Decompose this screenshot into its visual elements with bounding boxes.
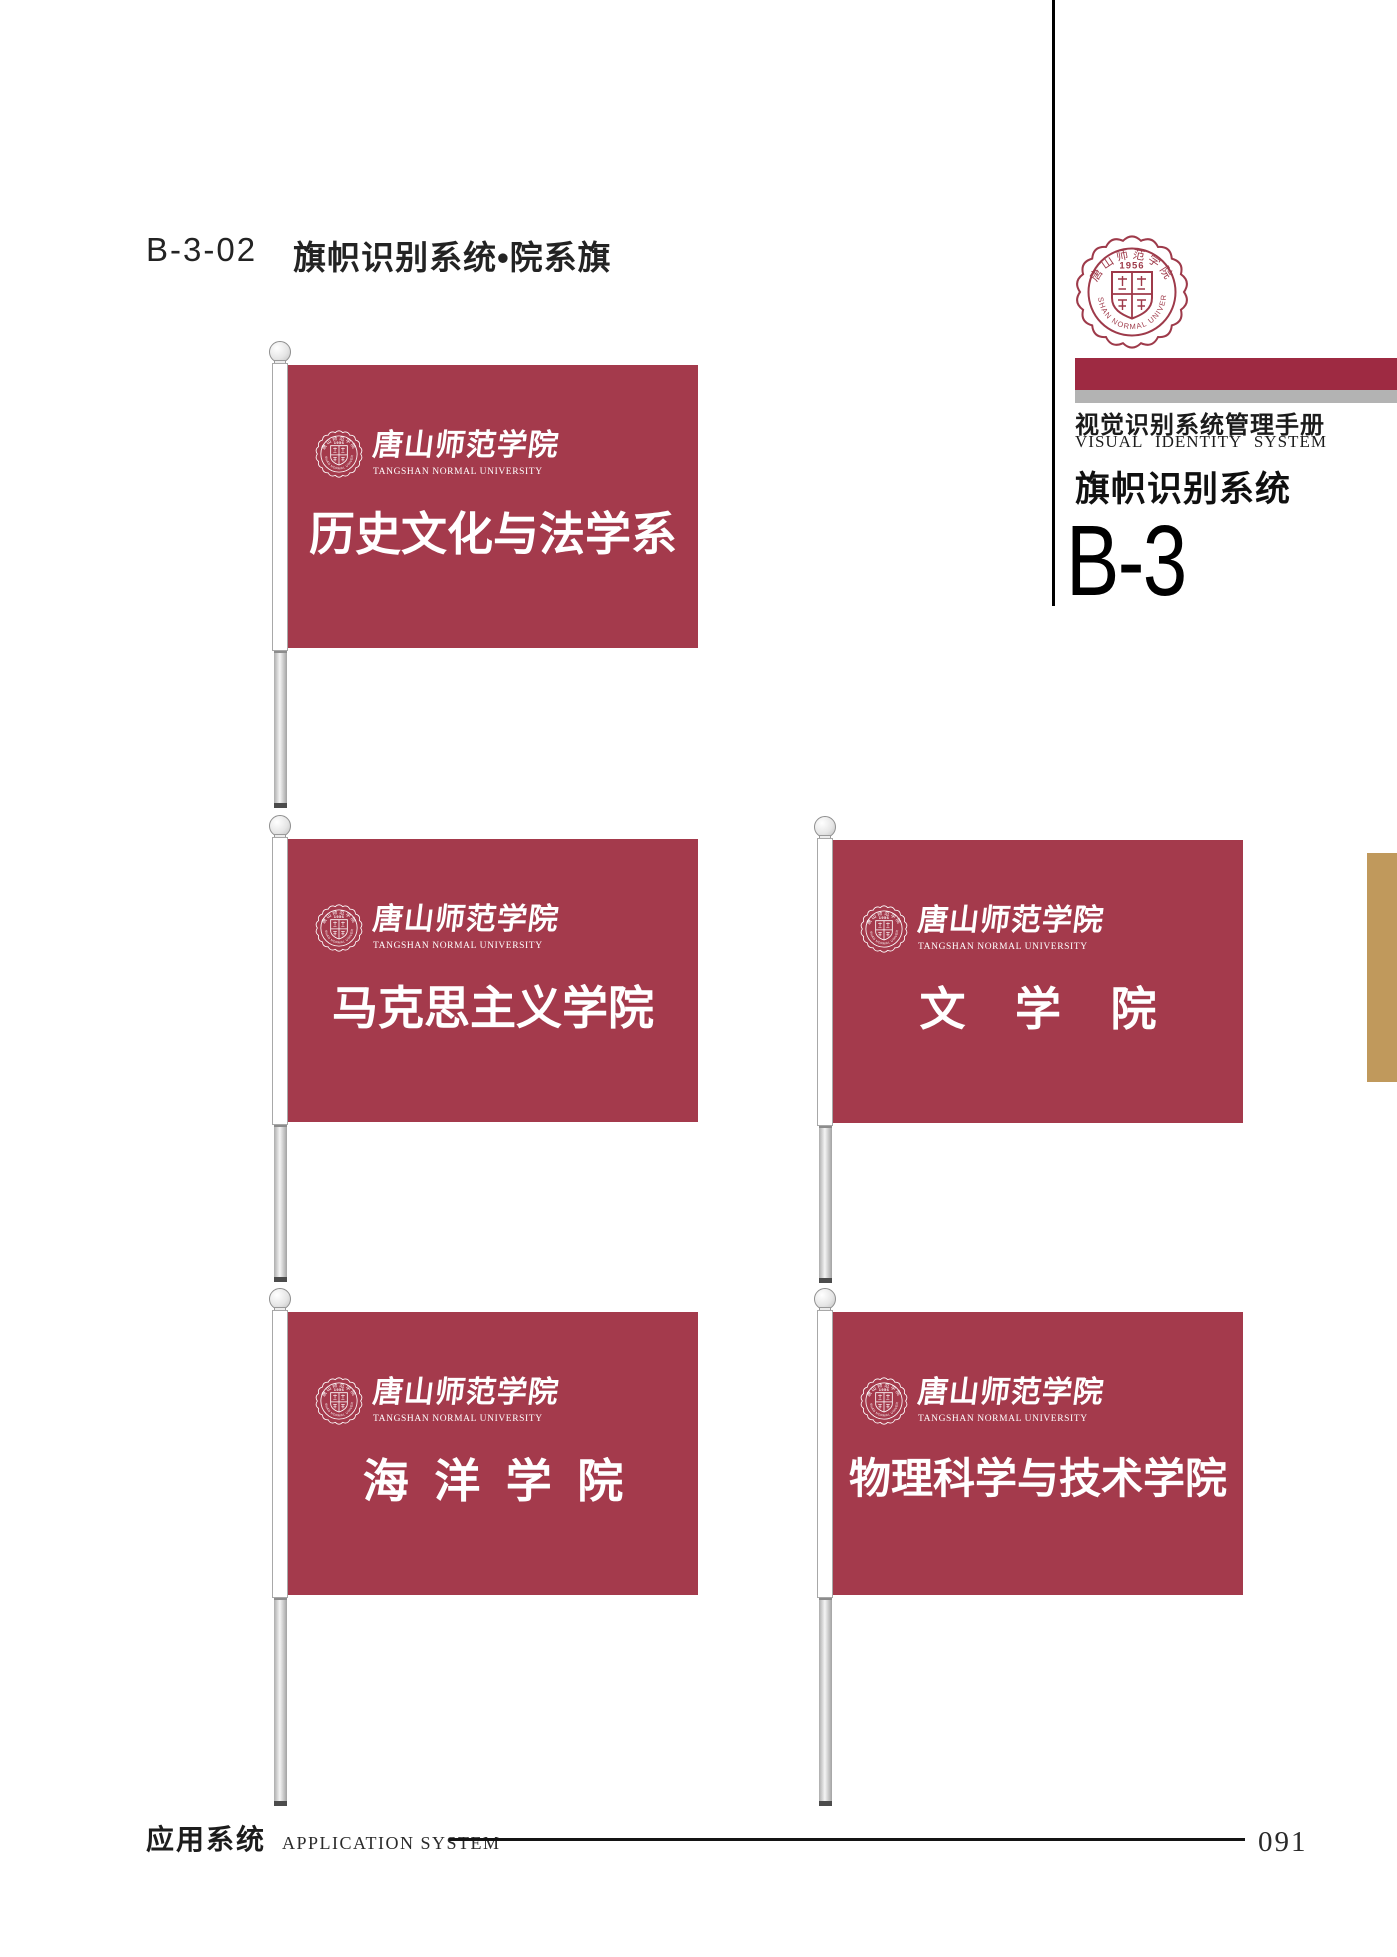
university-seal-icon	[314, 1376, 364, 1426]
flag-logo-text: 唐山师范学院 TANGSHAN NORMAL UNIVERSITY	[373, 903, 559, 951]
flag-unit: 唐山师范学院 TANGSHAN NORMAL UNIVERSITY 海 洋 学 …	[272, 1288, 698, 1807]
flagpole-lower	[274, 1125, 287, 1282]
flagpole-upper	[272, 1310, 288, 1598]
flag-logo: 唐山师范学院 TANGSHAN NORMAL UNIVERSITY	[859, 1376, 1104, 1426]
department-name: 物理科学与技术学院	[839, 1458, 1237, 1502]
page-title-text: 旗帜识别系统•院系旗	[293, 231, 612, 279]
header-red-bar	[1075, 358, 1397, 390]
flag-unit: 唐山师范学院 TANGSHAN NORMAL UNIVERSITY 马克思主义学…	[272, 815, 698, 1282]
flagpole-upper	[817, 1310, 833, 1598]
department-flag: 唐山师范学院 TANGSHAN NORMAL UNIVERSITY 历史文化与法…	[288, 365, 698, 648]
department-flag: 唐山师范学院 TANGSHAN NORMAL UNIVERSITY 物理科学与技…	[833, 1312, 1243, 1595]
flagpole-lower	[274, 651, 287, 808]
university-seal-icon	[1072, 231, 1192, 353]
department-name: 文 学 院	[839, 986, 1237, 1034]
university-name-en: TANGSHAN NORMAL UNIVERSITY	[918, 1414, 1104, 1424]
flag-unit: 唐山师范学院 TANGSHAN NORMAL UNIVERSITY 文 学 院	[817, 816, 1243, 1283]
department-name: 海 洋 学 院	[294, 1458, 692, 1506]
department-name: 历史文化与法学系	[294, 511, 692, 559]
university-name-en: TANGSHAN NORMAL UNIVERSITY	[373, 467, 559, 477]
university-name-en: TANGSHAN NORMAL UNIVERSITY	[918, 942, 1104, 952]
flag-unit: 唐山师范学院 TANGSHAN NORMAL UNIVERSITY 历史文化与法…	[272, 341, 698, 808]
university-seal-icon	[314, 429, 364, 479]
flagpole-lower	[819, 1126, 832, 1283]
edge-accent-bar	[1367, 853, 1397, 1082]
university-calligraphy: 唐山师范学院	[371, 429, 561, 464]
flag-logo: 唐山师范学院 TANGSHAN NORMAL UNIVERSITY	[314, 903, 559, 953]
flag-logo: 唐山师范学院 TANGSHAN NORMAL UNIVERSITY	[314, 1376, 559, 1426]
footer-rule	[449, 1838, 1245, 1841]
university-calligraphy: 唐山师范学院	[916, 904, 1106, 939]
department-flag: 唐山师范学院 TANGSHAN NORMAL UNIVERSITY 马克思主义学…	[288, 839, 698, 1122]
page-title: B-3-02 旗帜识别系统•院系旗	[146, 231, 612, 279]
university-calligraphy: 唐山师范学院	[371, 903, 561, 938]
flag-logo: 唐山师范学院 TANGSHAN NORMAL UNIVERSITY	[859, 904, 1104, 954]
vertical-divider	[1052, 0, 1055, 606]
university-calligraphy: 唐山师范学院	[916, 1376, 1106, 1411]
flag-logo-text: 唐山师范学院 TANGSHAN NORMAL UNIVERSITY	[918, 904, 1104, 952]
footer-label-cn: 应用系统	[146, 1818, 266, 1858]
university-seal-icon	[859, 904, 909, 954]
university-seal-icon	[314, 903, 364, 953]
flagpole-upper	[272, 363, 288, 651]
footer-label-en: APPLICATION SYSTEM	[282, 1833, 501, 1854]
university-calligraphy: 唐山师范学院	[371, 1376, 561, 1411]
manual-title-en: VISUAL IDENTITY SYSTEM	[1075, 432, 1327, 452]
page-number: 091	[1258, 1826, 1308, 1859]
department-flag: 唐山师范学院 TANGSHAN NORMAL UNIVERSITY 海 洋 学 …	[288, 1312, 698, 1595]
flag-logo: 唐山师范学院 TANGSHAN NORMAL UNIVERSITY	[314, 429, 559, 479]
page-title-code: B-3-02	[146, 231, 257, 279]
flag-logo-text: 唐山师范学院 TANGSHAN NORMAL UNIVERSITY	[918, 1376, 1104, 1424]
flagpole-lower	[274, 1598, 287, 1806]
header-gray-bar	[1075, 390, 1397, 403]
flag-unit: 唐山师范学院 TANGSHAN NORMAL UNIVERSITY 物理科学与技…	[817, 1288, 1243, 1807]
university-name-en: TANGSHAN NORMAL UNIVERSITY	[373, 941, 559, 951]
flag-logo-text: 唐山师范学院 TANGSHAN NORMAL UNIVERSITY	[373, 429, 559, 477]
department-flag: 唐山师范学院 TANGSHAN NORMAL UNIVERSITY 文 学 院	[833, 840, 1243, 1123]
university-name-en: TANGSHAN NORMAL UNIVERSITY	[373, 1414, 559, 1424]
flagpole-lower	[819, 1598, 832, 1806]
flag-logo-text: 唐山师范学院 TANGSHAN NORMAL UNIVERSITY	[373, 1376, 559, 1424]
flagpole-upper	[272, 837, 288, 1125]
flagpole-upper	[817, 838, 833, 1126]
manual-page: B-3-02 旗帜识别系统•院系旗 视觉识别系统管理手册 VISUAL IDEN…	[0, 0, 1397, 1957]
footer: 应用系统 APPLICATION SYSTEM	[146, 1818, 501, 1858]
department-name: 马克思主义学院	[294, 985, 692, 1033]
university-seal-icon	[859, 1376, 909, 1426]
section-code: B-3	[1066, 514, 1186, 609]
